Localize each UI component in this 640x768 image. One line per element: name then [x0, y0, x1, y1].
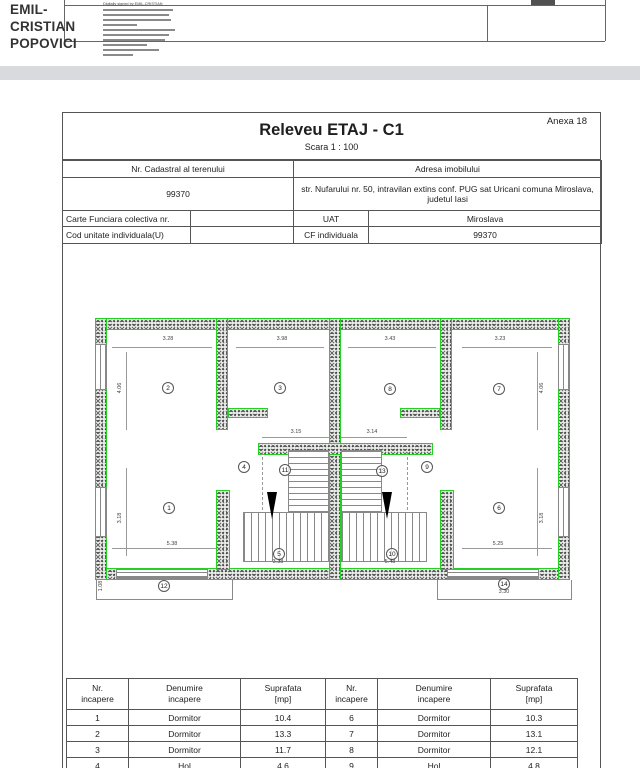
- column-header: Denumire incapere: [378, 679, 491, 710]
- room-cell: 10.4: [241, 710, 326, 726]
- stair-direction-arrow: [382, 492, 392, 519]
- room-cell: Hol: [378, 758, 491, 768]
- room-number-label: 8: [384, 383, 396, 395]
- room-cell: 9: [326, 758, 378, 768]
- room-cell: 11.7: [241, 742, 326, 758]
- wall-segment: [440, 490, 454, 570]
- room-cell: 10.3: [491, 710, 578, 726]
- floor-plan: 12345678910111213143.283.983.433.233.153…: [0, 0, 640, 768]
- dimension-line: [112, 347, 212, 348]
- balcony-line: [437, 599, 572, 600]
- window: [558, 344, 570, 390]
- dimension-label: 3.14: [367, 429, 378, 435]
- room-number-label: 3: [274, 382, 286, 394]
- column-header: Nr. incapere: [326, 679, 378, 710]
- window: [95, 344, 107, 390]
- dimension-label: 3.23: [495, 336, 506, 342]
- column-header: Denumire incapere: [129, 679, 241, 710]
- room-cell: 2: [67, 726, 129, 742]
- room-cell: Dormitor: [129, 710, 241, 726]
- stair-dashed-line: [407, 452, 408, 510]
- dimension-line: [462, 548, 552, 549]
- room-number-label: 6: [493, 502, 505, 514]
- window: [558, 487, 570, 537]
- dimension-label: 3.38: [273, 559, 284, 565]
- dimension-label: 3.15: [291, 429, 302, 435]
- stairs: [288, 450, 329, 512]
- dimension-line: [537, 352, 538, 430]
- dimension-label: 5.48: [385, 559, 396, 565]
- stairs: [341, 512, 427, 562]
- room-cell: Dormitor: [129, 726, 241, 742]
- wall-segment: [228, 408, 268, 418]
- room-number-label: 7: [493, 383, 505, 395]
- dimension-label: 3.98: [277, 336, 288, 342]
- dimension-label: 3.30: [499, 589, 510, 595]
- room-cell: 3: [67, 742, 129, 758]
- dimension-label: 3.18: [117, 513, 123, 524]
- room-cell: 7: [326, 726, 378, 742]
- balcony-line: [96, 580, 97, 600]
- window: [116, 569, 208, 579]
- room-cell: 6: [326, 710, 378, 726]
- room-row: 2Dormitor13.37Dormitor13.1: [67, 726, 578, 742]
- balcony-line: [571, 580, 572, 600]
- room-cell: 13.1: [491, 726, 578, 742]
- room-row: 4Hol4.69Hol4.8: [67, 758, 578, 768]
- dimension-line: [236, 347, 324, 348]
- dimension-label: 4.06: [539, 383, 545, 394]
- wall-segment: [216, 490, 230, 570]
- window: [95, 487, 107, 537]
- room-number-label: 4: [238, 461, 250, 473]
- dimension-line: [126, 352, 127, 430]
- balcony-line: [437, 580, 438, 600]
- dimension-label: 3.28: [163, 336, 174, 342]
- dimension-label: 5.38: [167, 541, 178, 547]
- room-cell: 4.6: [241, 758, 326, 768]
- room-cell: Dormitor: [378, 742, 491, 758]
- room-number-label: 11: [279, 464, 291, 476]
- stairs: [341, 450, 382, 512]
- room-cell: 4.8: [491, 758, 578, 768]
- dimension-line: [348, 347, 436, 348]
- room-cell: 4: [67, 758, 129, 768]
- balcony-line: [96, 599, 233, 600]
- room-row: 3Dormitor11.78Dormitor12.1: [67, 742, 578, 758]
- stairs: [243, 512, 329, 562]
- room-number-label: 1: [163, 502, 175, 514]
- column-header: Nr. incapere: [67, 679, 129, 710]
- dimension-line: [462, 347, 552, 348]
- room-number-label: 2: [162, 382, 174, 394]
- scanned-document-page: EMIL- CRISTIAN POPOVICI Digitally signed…: [0, 0, 640, 768]
- room-cell: 1: [67, 710, 129, 726]
- column-header: Suprafata [mp]: [241, 679, 326, 710]
- dimension-line: [537, 468, 538, 556]
- wall-segment: [216, 318, 228, 430]
- table-header-row: Nr. incapereDenumire incapereSuprafata […: [67, 679, 578, 710]
- window: [447, 569, 539, 579]
- room-number-label: 13: [376, 465, 388, 477]
- column-header: Suprafata [mp]: [491, 679, 578, 710]
- dimension-line: [112, 548, 216, 549]
- dimension-label: 3.43: [385, 336, 396, 342]
- dimension-line: [341, 437, 407, 438]
- stair-dashed-line: [262, 452, 263, 510]
- balcony-line: [232, 580, 233, 600]
- wall-segment: [440, 318, 452, 430]
- stair-direction-arrow: [267, 492, 277, 519]
- room-cell: 8: [326, 742, 378, 758]
- room-cell: Dormitor: [129, 742, 241, 758]
- room-cell: 13.3: [241, 726, 326, 742]
- dimension-line: [262, 437, 330, 438]
- room-row: 1Dormitor10.46Dormitor10.3: [67, 710, 578, 726]
- dimension-label: 5.25: [493, 541, 504, 547]
- dimension-label: 4.06: [117, 383, 123, 394]
- room-cell: Hol: [129, 758, 241, 768]
- room-cell: Dormitor: [378, 710, 491, 726]
- room-number-label: 12: [158, 580, 170, 592]
- room-cell: 12.1: [491, 742, 578, 758]
- dimension-line: [126, 468, 127, 556]
- dimension-label: 1.08: [98, 581, 104, 592]
- room-number-label: 9: [421, 461, 433, 473]
- dimension-label: 3.18: [539, 513, 545, 524]
- room-cell: Dormitor: [378, 726, 491, 742]
- room-areas-table: Nr. incapereDenumire incapereSuprafata […: [66, 678, 578, 768]
- wall-segment: [400, 408, 440, 418]
